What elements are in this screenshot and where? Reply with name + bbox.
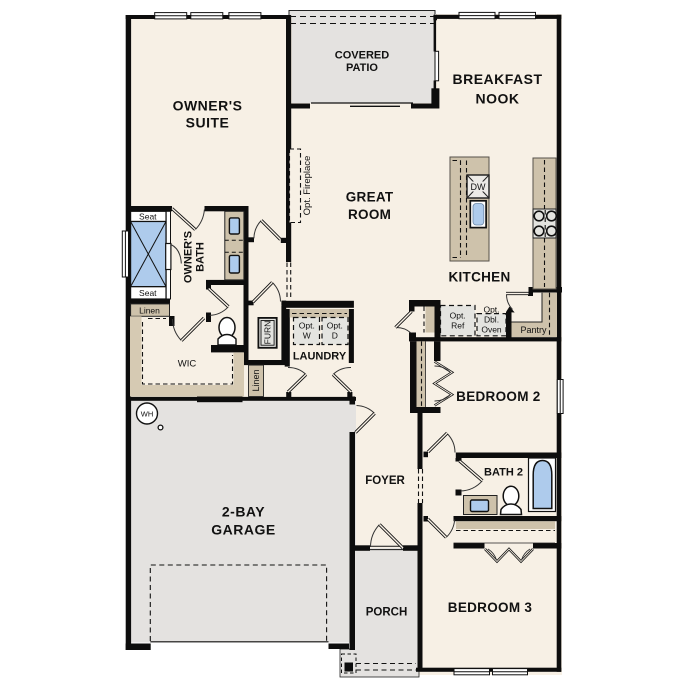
svg-text:D: D — [332, 331, 338, 341]
svg-text:Opt. Fireplace: Opt. Fireplace — [302, 156, 313, 216]
svg-text:ROOM: ROOM — [348, 207, 391, 222]
svg-text:FOYER: FOYER — [365, 475, 405, 487]
svg-text:Opt.: Opt. — [450, 311, 466, 321]
svg-text:WH: WH — [141, 410, 154, 419]
svg-text:BEDROOM 3: BEDROOM 3 — [448, 600, 533, 615]
svg-text:Seat: Seat — [139, 288, 157, 298]
svg-text:LAUNDRY: LAUNDRY — [293, 351, 347, 363]
svg-text:Seat: Seat — [139, 212, 157, 222]
svg-text:Pantry: Pantry — [520, 325, 547, 335]
svg-text:WIC: WIC — [178, 359, 197, 370]
svg-text:DW: DW — [471, 182, 486, 192]
svg-text:Opt.: Opt. — [483, 305, 499, 315]
svg-text:KITCHEN: KITCHEN — [448, 270, 510, 285]
svg-text:BREAKFAST: BREAKFAST — [452, 71, 542, 87]
svg-text:Linen: Linen — [251, 369, 261, 391]
svg-text:BATH: BATH — [195, 242, 207, 272]
svg-text:COVERED: COVERED — [335, 50, 389, 62]
svg-text:Dbl.: Dbl. — [484, 315, 499, 325]
svg-text:OWNER'S: OWNER'S — [173, 98, 243, 114]
svg-text:PATIO: PATIO — [346, 62, 378, 74]
svg-text:Opt.: Opt. — [327, 321, 343, 331]
svg-text:OWNER'S: OWNER'S — [183, 231, 195, 283]
svg-text:Opt.: Opt. — [299, 321, 315, 331]
svg-text:SUITE: SUITE — [186, 115, 230, 131]
svg-text:GARAGE: GARAGE — [211, 522, 275, 538]
svg-text:Ref: Ref — [451, 321, 465, 331]
svg-text:FURN: FURN — [263, 321, 273, 345]
svg-text:NOOK: NOOK — [476, 91, 520, 107]
svg-text:BEDROOM 2: BEDROOM 2 — [456, 389, 540, 404]
svg-text:W: W — [303, 331, 311, 341]
svg-text:GREAT: GREAT — [346, 190, 394, 205]
svg-text:BATH 2: BATH 2 — [484, 467, 523, 479]
svg-text:2-BAY: 2-BAY — [222, 504, 265, 520]
svg-text:PORCH: PORCH — [366, 607, 408, 619]
svg-text:Linen: Linen — [139, 306, 160, 316]
svg-text:Oven: Oven — [481, 325, 502, 335]
